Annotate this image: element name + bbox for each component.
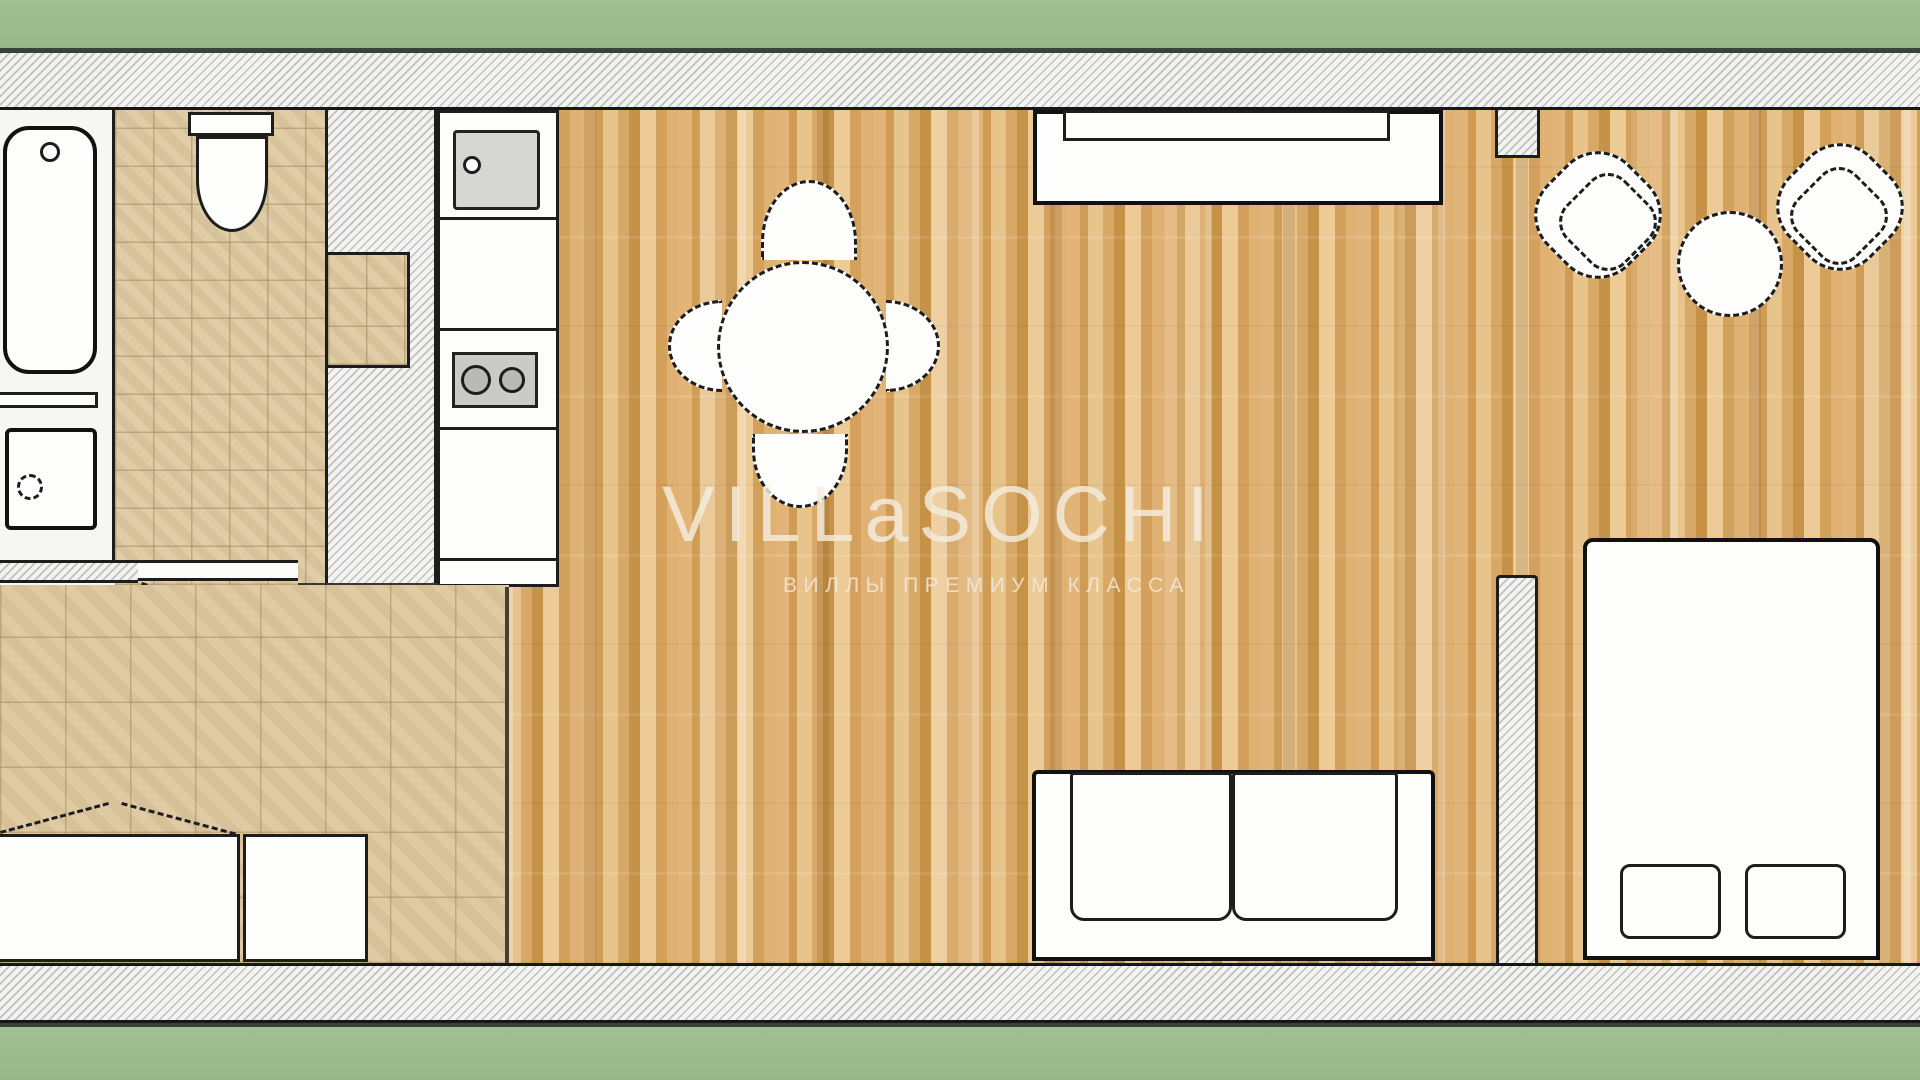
bathroom-partition-line <box>112 110 115 562</box>
counter-divider-1 <box>439 217 557 220</box>
bedroom-wall-pier <box>1495 110 1540 158</box>
stove-burner-right-icon <box>499 367 525 393</box>
border-bottom <box>0 1023 1920 1080</box>
floor-plan-image: VILLaSOCHI ВИЛЛЫ ПРЕМИУМ КЛАССА <box>0 0 1920 1080</box>
bathtub <box>3 126 97 374</box>
counter-divider-2 <box>439 328 557 331</box>
stove-burner-left-icon <box>461 365 491 395</box>
wall-console-inner <box>1063 110 1390 141</box>
toilet-tank <box>188 112 274 136</box>
bed-pillow-left <box>1620 864 1721 939</box>
hallway-closet-right <box>243 834 368 962</box>
bathroom-door-leaf <box>138 560 298 581</box>
bedroom-partition-wall <box>1496 575 1538 963</box>
bed-pillow-right <box>1745 864 1846 939</box>
washer-knob-icon <box>17 474 43 500</box>
watermark-tagline: ВИЛЛЫ ПРЕМИУМ КЛАССА <box>783 574 1190 598</box>
outer-wall-bottom <box>0 963 1920 1023</box>
dining-table <box>717 261 889 433</box>
sofa-cushion-left <box>1070 772 1232 921</box>
side-table <box>1677 211 1783 317</box>
hallway-closet-left <box>0 834 240 962</box>
bath-shelf <box>0 392 98 408</box>
sink-faucet-icon <box>463 156 481 174</box>
counter-divider-3 <box>439 427 557 430</box>
counter-divider-4 <box>439 558 557 561</box>
bathtub-drain-icon <box>40 142 60 162</box>
border-top <box>0 0 1920 53</box>
watermark-logo: VILLaSOCHI <box>662 468 1219 560</box>
bathroom-wall-niche <box>328 252 410 368</box>
hallway-living-boundary <box>505 587 509 963</box>
bathroom-bottom-wall <box>0 560 138 583</box>
outer-wall-top <box>0 53 1920 110</box>
sofa-cushion-right <box>1232 772 1398 921</box>
